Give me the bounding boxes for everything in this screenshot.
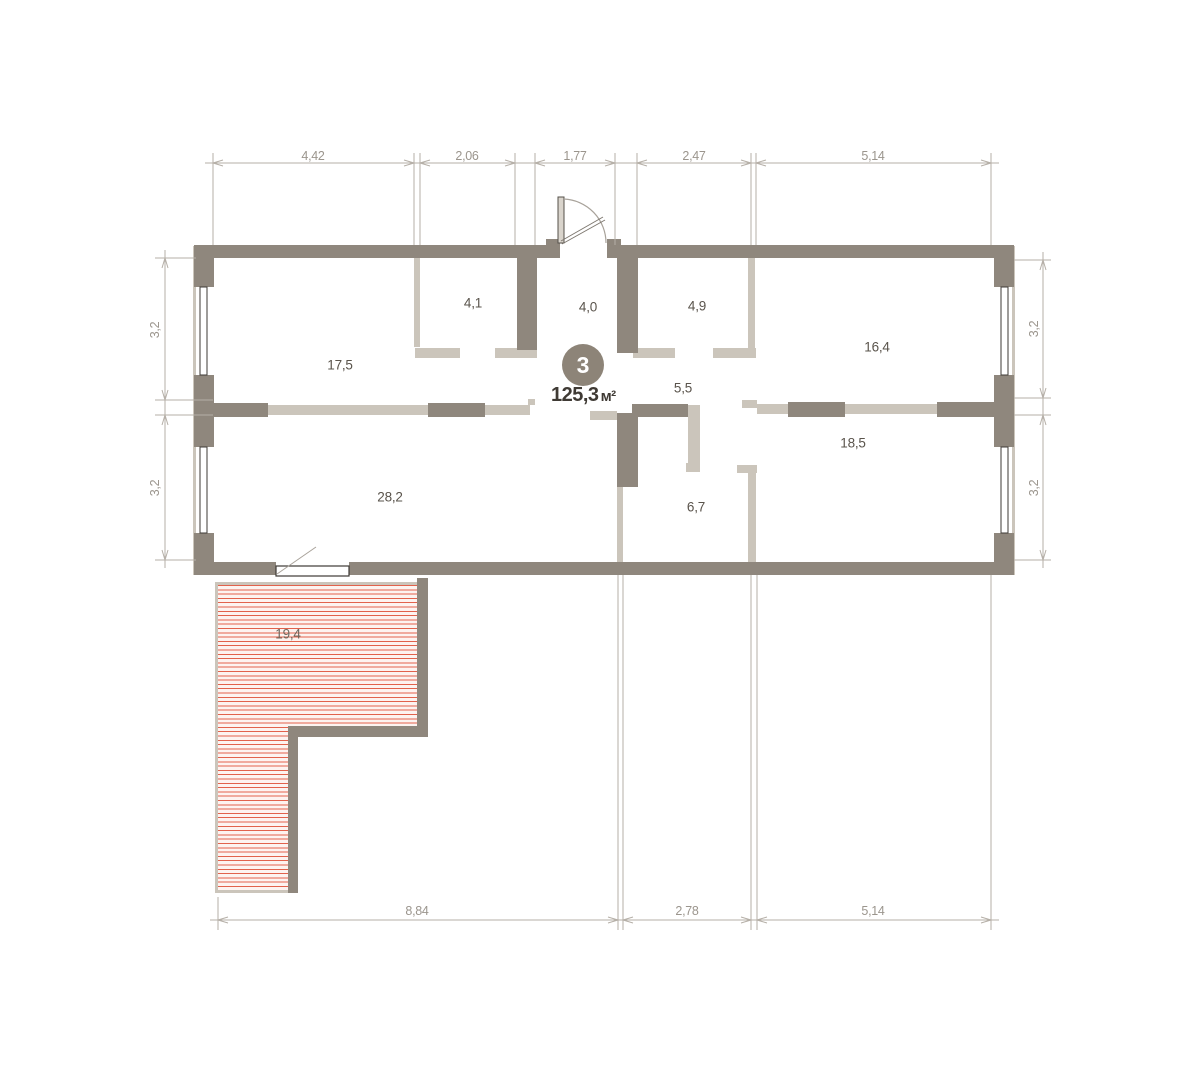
wall-segment (195, 245, 560, 258)
total-area-value: 125,3 (551, 384, 599, 406)
partition-segment (528, 399, 535, 405)
wall-segment (994, 245, 1014, 287)
dimension-label: 8,84 (405, 904, 428, 918)
partition-segment (485, 405, 530, 415)
wall-segment (617, 413, 638, 487)
partition-segment (713, 348, 756, 358)
dimension-label: 2,06 (455, 149, 478, 163)
wall-segment (994, 375, 1014, 447)
wall-segment (788, 402, 845, 417)
window (200, 447, 207, 533)
partition-segment (688, 405, 700, 463)
partition-segment (414, 258, 420, 347)
wall-segment (288, 726, 428, 737)
room-area-label: 5,5 (674, 381, 692, 396)
wall-segment (617, 258, 638, 353)
unit-number-badge: 3 (562, 344, 604, 386)
entry-door-swing-arc (564, 199, 606, 243)
partition-segment (686, 463, 700, 472)
dimension-label: 3,2 (148, 480, 162, 496)
floor-plan: 17,5 4,1 4,0 4,9 16,4 5,5 18,5 28,2 6,7 … (0, 0, 1200, 1078)
dimension-label: 3,2 (1027, 321, 1041, 337)
dimension-label: 4,42 (301, 149, 324, 163)
wall-segment (632, 404, 688, 417)
window (200, 287, 207, 375)
wall-segment (607, 245, 1013, 258)
room-area-label: 28,2 (377, 490, 402, 505)
wall-segment (288, 737, 298, 893)
terrace-area-label: 19,4 (275, 627, 300, 642)
wall-segment (428, 403, 485, 417)
dimension-label: 2,47 (682, 149, 705, 163)
partition-segment (590, 411, 617, 420)
wall-segment (194, 245, 214, 287)
window (1001, 287, 1008, 375)
partition-segment (748, 472, 756, 562)
room-area-label: 17,5 (327, 358, 352, 373)
window (1001, 447, 1008, 533)
dimension-label: 5,14 (861, 904, 884, 918)
partition-segment (415, 348, 460, 358)
wall-segment (517, 258, 537, 350)
wall-segment (607, 239, 621, 247)
partition-segment (217, 582, 417, 585)
partition-segment (215, 582, 218, 893)
entry-door-leaf-line (561, 217, 603, 241)
partition-segment (748, 258, 755, 348)
wall-segment (194, 375, 214, 447)
total-area-label: 125,3м² (551, 384, 616, 407)
room-area-label: 18,5 (840, 436, 865, 451)
dimension-label: 1,77 (563, 149, 586, 163)
total-area-unit: м² (601, 388, 616, 405)
wall-segment (349, 562, 1013, 575)
wall-segment (937, 402, 994, 417)
entry-door-leaf (558, 197, 564, 243)
plan-geometry-layer (0, 0, 1200, 1078)
dimension-label: 3,2 (148, 322, 162, 338)
dimension-label: 2,78 (675, 904, 698, 918)
partition-segment (268, 405, 428, 415)
partition-segment (215, 890, 298, 893)
room-area-label: 6,7 (687, 500, 705, 515)
partition-segment (845, 404, 937, 414)
dimension-label: 3,2 (1027, 480, 1041, 496)
dimension-label: 5,14 (861, 149, 884, 163)
partition-segment (617, 487, 623, 562)
wall-segment (213, 403, 268, 417)
partition-segment (757, 404, 788, 414)
room-area-label: 4,9 (688, 299, 706, 314)
room-area-label: 16,4 (864, 340, 889, 355)
partition-segment (737, 465, 757, 473)
wall-segment (417, 578, 428, 737)
wall-segment (195, 562, 276, 575)
room-area-label: 4,1 (464, 296, 482, 311)
room-area-label: 4,0 (579, 300, 597, 315)
entry-door-leaf-line (562, 220, 605, 244)
partition-segment (633, 348, 675, 358)
partition-segment (742, 400, 757, 408)
